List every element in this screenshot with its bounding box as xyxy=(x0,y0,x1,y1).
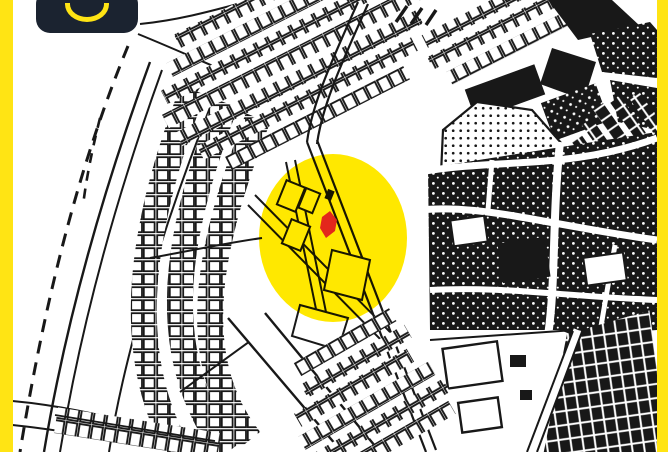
smile-icon xyxy=(65,3,109,22)
highlight-circle xyxy=(259,154,407,322)
brand-logo: SAKAN xyxy=(36,0,138,33)
left-accent-stripe xyxy=(0,0,13,452)
map-flyer: SAKAN xyxy=(0,0,668,452)
map-canvas xyxy=(0,0,668,452)
right-accent-stripe xyxy=(657,0,668,452)
